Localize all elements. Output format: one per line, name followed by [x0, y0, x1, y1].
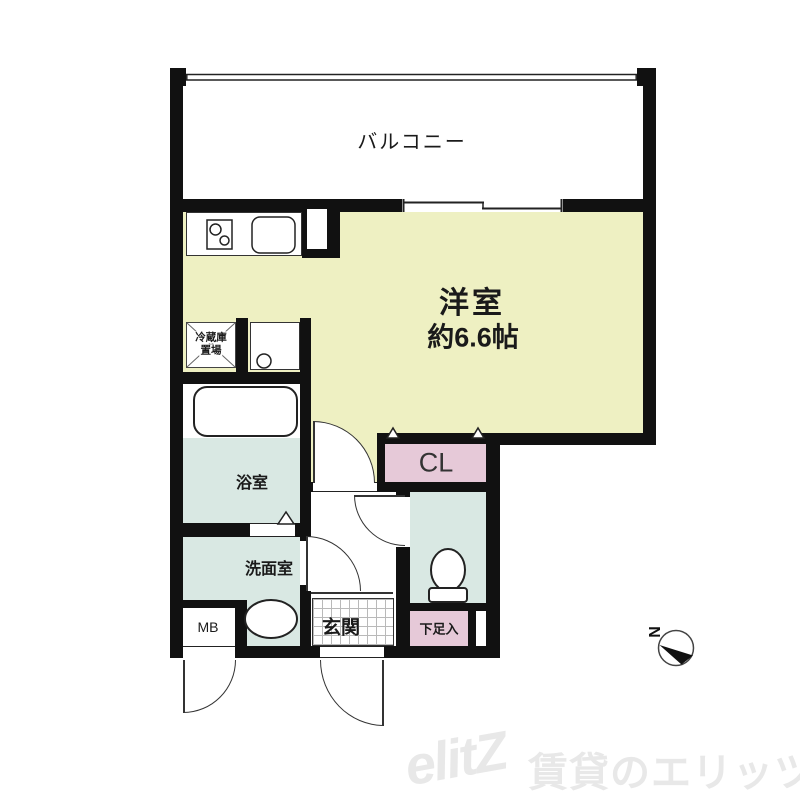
- doorway-meter-box: [183, 646, 235, 658]
- toilet-room-floor: [410, 492, 486, 603]
- closet-label: CL: [419, 448, 454, 479]
- wall-bath-washroom-b: [295, 523, 311, 537]
- wall-hall-south-2: [377, 482, 499, 492]
- main-room-size-label: 約6.6帖: [427, 316, 519, 355]
- wall-balcony-bottom-right: [563, 199, 655, 212]
- entrance-step-line: [305, 592, 393, 594]
- balcony-label: バルコニー: [357, 126, 467, 155]
- refrigerator-space-label: 冷蔵庫 置場: [194, 331, 228, 356]
- wall-closet-left: [377, 433, 385, 492]
- wall-closet-top: [377, 433, 499, 444]
- wall-top-left-block: [170, 68, 186, 86]
- pipe-space: [476, 611, 486, 646]
- shoe-cabinet-label: 下足入: [419, 619, 458, 638]
- wall-bottom-b: [384, 646, 500, 658]
- wall-right: [643, 68, 656, 445]
- wall-balcony-bottom-left: [170, 199, 402, 212]
- wall-bathroom-east: [300, 384, 311, 523]
- wall-step: [486, 433, 656, 445]
- wall-bath-washroom-a: [170, 523, 250, 537]
- duct-inset: [307, 209, 327, 249]
- doorway-entrance: [320, 646, 384, 658]
- wall-lower-right: [486, 433, 500, 658]
- wall-left: [170, 68, 183, 658]
- wall-hall-south-1: [300, 482, 313, 492]
- wall-bathroom-top: [170, 372, 311, 384]
- wall-washer-east: [300, 318, 311, 375]
- balcony-railing-icon: [186, 75, 637, 81]
- bathroom-label: 浴室: [236, 469, 268, 493]
- washing-machine-pan: [250, 322, 300, 370]
- doorway-main-room: [313, 482, 377, 492]
- doorway-bathroom: [250, 523, 295, 537]
- wall-bottom-a: [235, 646, 320, 658]
- sliding-window-icon: [404, 199, 562, 212]
- washroom-label: 洗面室: [245, 555, 293, 579]
- washroom-floor-lower: [247, 600, 300, 646]
- wall-box-divider: [236, 318, 248, 375]
- floor-plan: elitZ 賃貸のエリッツ: [0, 0, 800, 800]
- wall-toilet-west-2: [396, 547, 410, 658]
- entrance-label: 玄関: [322, 613, 360, 640]
- north-label: N: [647, 626, 665, 638]
- wall-shoe-divider: [468, 611, 476, 646]
- wall-toilet-south: [410, 603, 500, 611]
- kitchen-counter: [186, 212, 302, 256]
- door-entrance: [320, 660, 384, 726]
- door-meter-box: [183, 660, 236, 713]
- watermark: elitZ 賃貸のエリッツ: [400, 722, 800, 800]
- watermark-text: 賃貸のエリッツ: [528, 740, 800, 798]
- bathtub: [193, 386, 298, 437]
- meter-box-label: MB: [198, 619, 219, 635]
- watermark-logo: elitZ: [400, 720, 510, 799]
